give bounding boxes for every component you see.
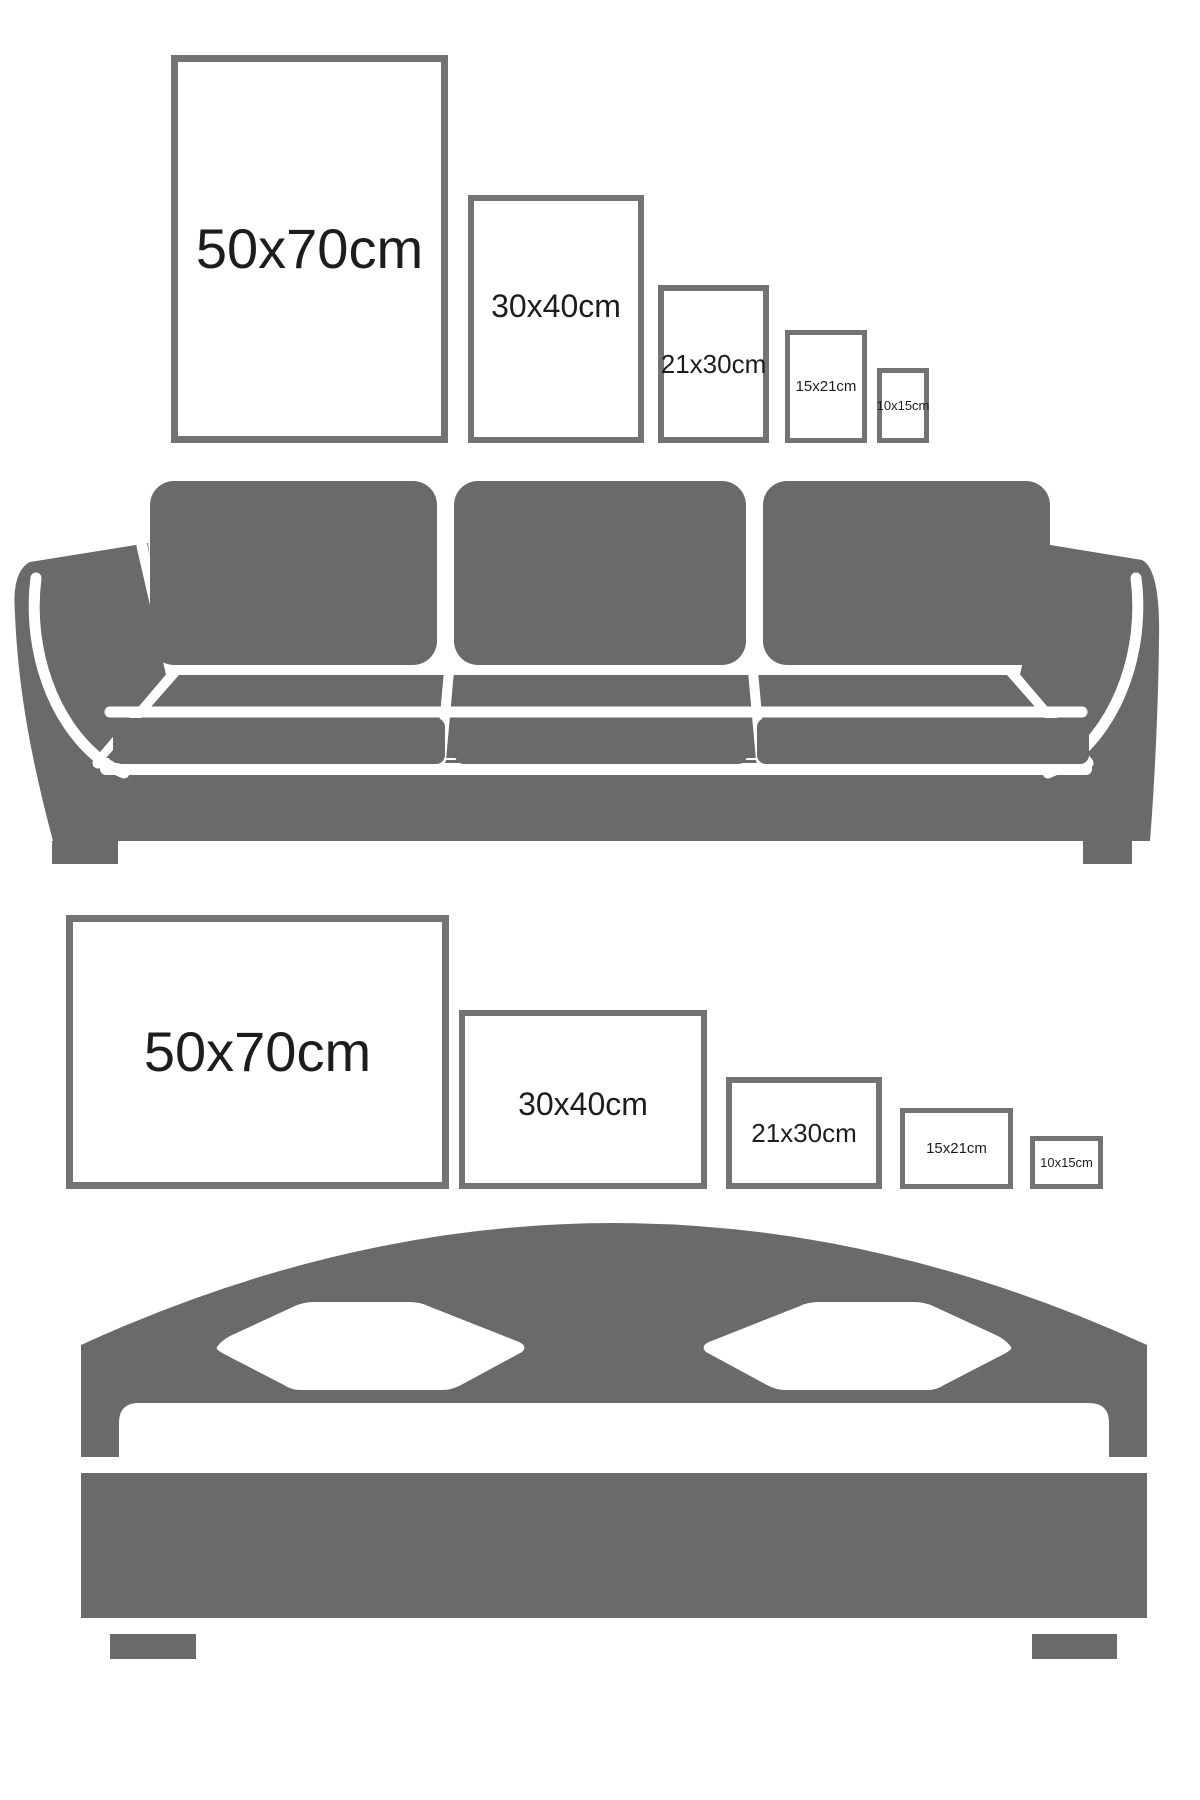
frame-size-label: 15x21cm: [926, 1141, 987, 1156]
bed-left-foot: [110, 1634, 196, 1659]
frame-size-label: 30x40cm: [518, 1088, 648, 1120]
sofa-seat-cushion-middle: [455, 718, 747, 764]
sofa-left-leg: [52, 841, 118, 864]
bed-icon: [81, 1223, 1147, 1659]
frame-21x30-landscape: 21x30cm: [726, 1077, 882, 1189]
frame-30x40-portrait: 30x40cm: [468, 195, 644, 443]
frame-21x30-portrait: 21x30cm: [658, 285, 769, 443]
sofa-icon: [14, 481, 1159, 864]
sofa-right-leg: [1083, 841, 1132, 864]
frame-size-label: 21x30cm: [751, 1120, 857, 1146]
frame-50x70-portrait: 50x70cm: [171, 55, 448, 443]
frame-size-label: 10x15cm: [877, 399, 930, 412]
frame-size-label: 15x21cm: [796, 379, 857, 394]
frame-size-label: 10x15cm: [1040, 1156, 1093, 1169]
sofa-seat-cushion-right: [757, 718, 1089, 764]
frame-10x15-landscape: 10x15cm: [1030, 1136, 1103, 1189]
frame-size-label: 50x70cm: [196, 221, 423, 277]
frame-15x21-portrait: 15x21cm: [785, 330, 867, 443]
poster-size-guide: 50x70cm 30x40cm 21x30cm 15x21cm 10x15cm …: [0, 0, 1200, 1800]
frame-10x15-portrait: 10x15cm: [877, 368, 929, 443]
bed-base: [81, 1473, 1147, 1618]
sofa-back-cushion-right: [763, 481, 1050, 665]
frame-size-label: 50x70cm: [144, 1024, 371, 1080]
frame-size-label: 30x40cm: [491, 290, 621, 322]
frame-50x70-landscape: 50x70cm: [66, 915, 449, 1189]
frame-15x21-landscape: 15x21cm: [900, 1108, 1013, 1189]
sofa-back-cushion-middle: [454, 481, 746, 665]
bed-right-foot: [1032, 1634, 1117, 1659]
sofa-seat-cushion-left: [113, 718, 445, 764]
sofa-back-cushion-left: [150, 481, 437, 665]
frame-30x40-landscape: 30x40cm: [459, 1010, 707, 1189]
frame-size-label: 21x30cm: [661, 351, 767, 377]
